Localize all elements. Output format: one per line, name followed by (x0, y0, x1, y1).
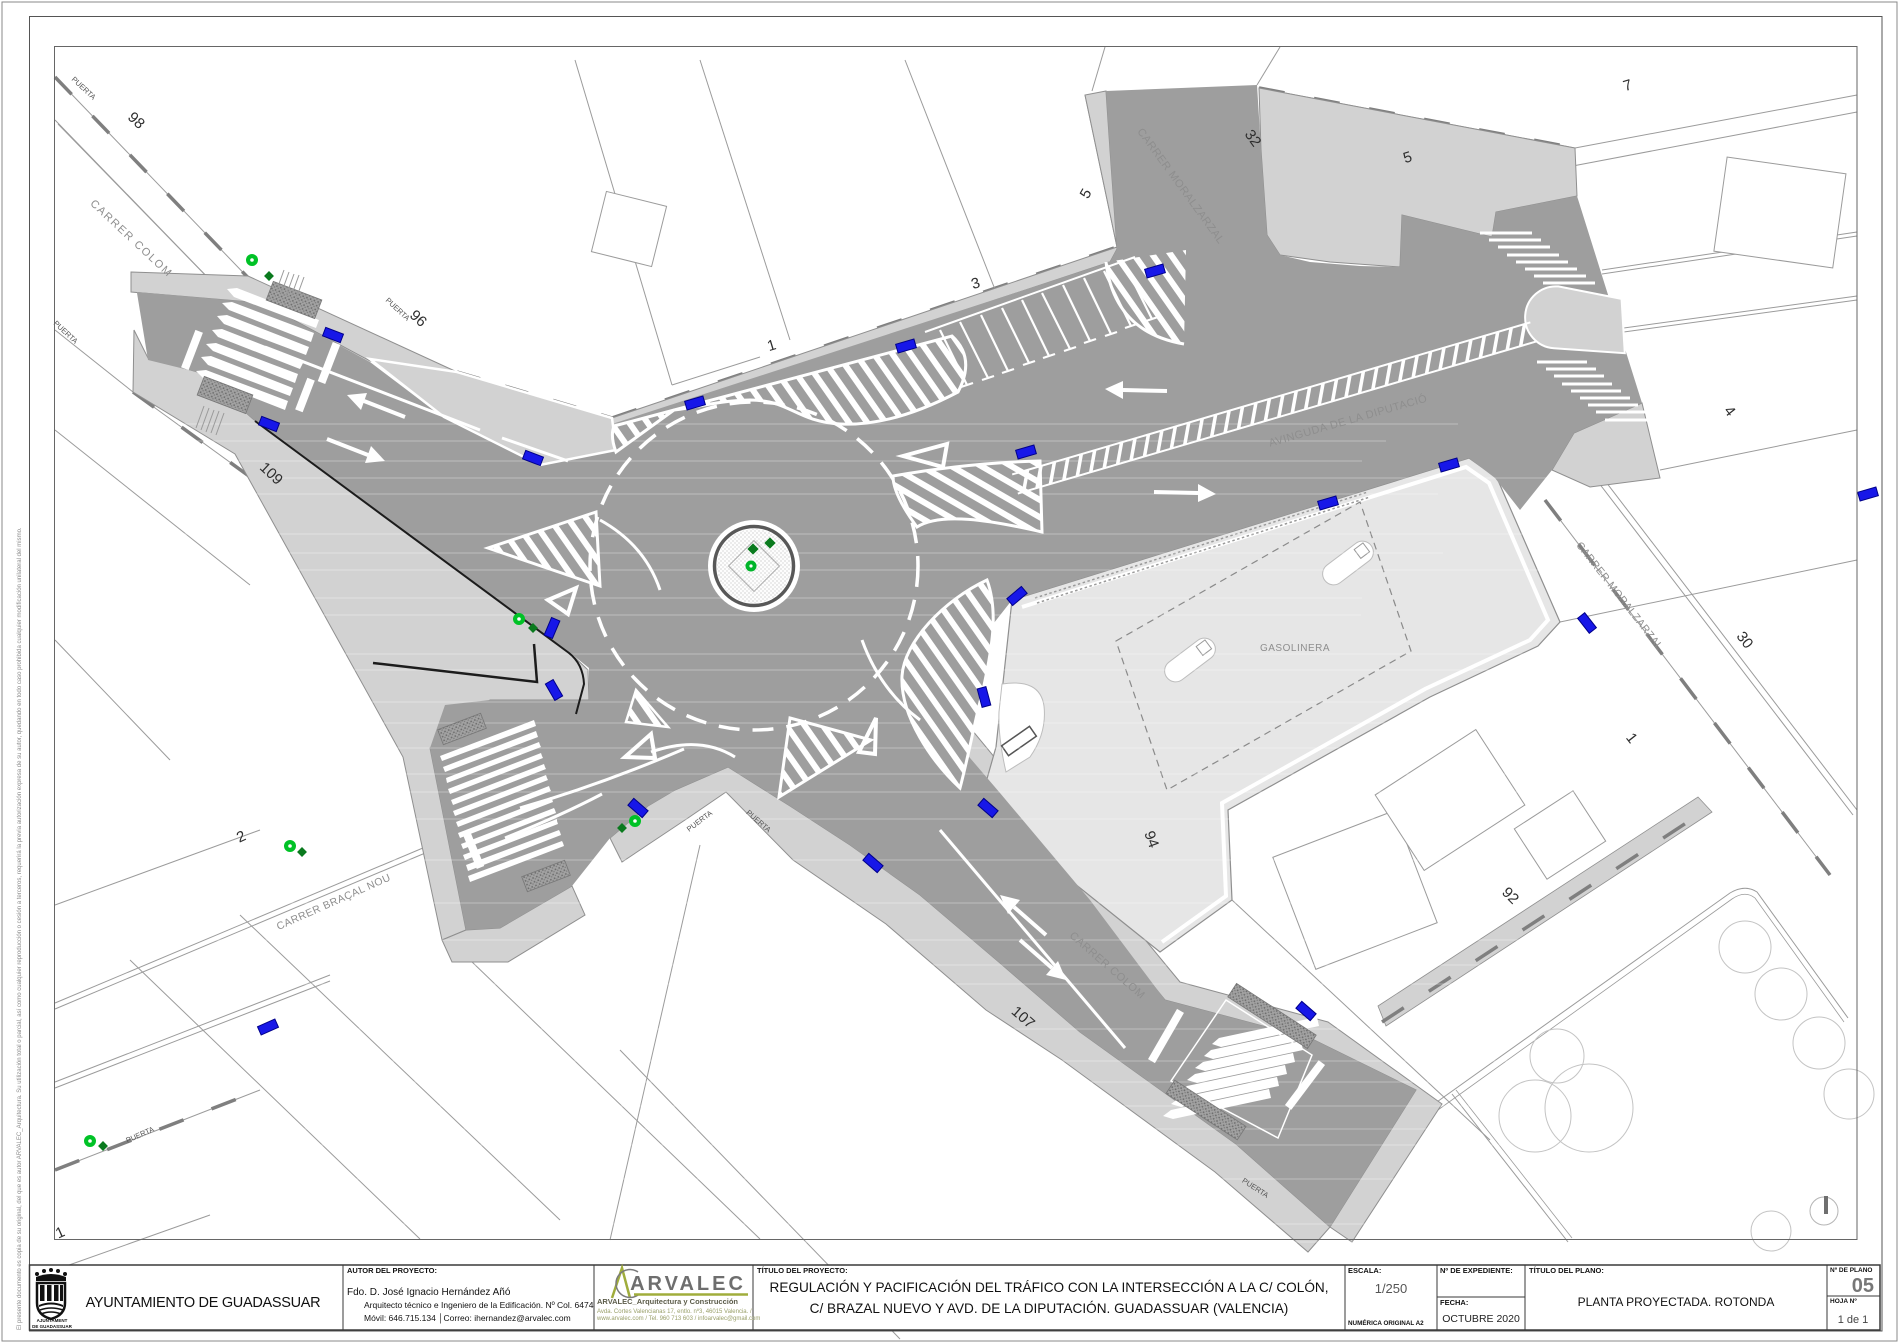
svg-text:OCTUBRE 2020: OCTUBRE 2020 (1442, 1313, 1520, 1325)
svg-text:1/250: 1/250 (1375, 1281, 1408, 1296)
svg-text:NUMÉRICA ORIGINAL A2: NUMÉRICA ORIGINAL A2 (1348, 1318, 1424, 1327)
svg-text:GASOLINERA: GASOLINERA (1260, 643, 1330, 654)
svg-text:www.arvalec.com / Tel. 960 713: www.arvalec.com / Tel. 960 713 603 / inf… (596, 1316, 760, 1322)
svg-text:TÍTULO DEL PROYECTO:: TÍTULO DEL PROYECTO: (757, 1266, 848, 1275)
svg-text:Nº DE PLANO: Nº DE PLANO (1830, 1267, 1872, 1274)
svg-text:ARVALEC_Arquitectura y Constru: ARVALEC_Arquitectura y Construcción (597, 1297, 738, 1306)
svg-text:Arquitecto técnico e Ingeniero: Arquitecto técnico e Ingeniero de la Edi… (364, 1300, 594, 1310)
svg-text:DE GUADASSUAR: DE GUADASSUAR (32, 1324, 73, 1329)
svg-text:ARVALEC: ARVALEC (630, 1273, 746, 1295)
svg-text:HOJA Nº: HOJA Nº (1830, 1298, 1857, 1305)
svg-text:PLANTA PROYECTADA. ROTONDA: PLANTA PROYECTADA. ROTONDA (1578, 1295, 1775, 1309)
svg-text:AJUNTAMENT: AJUNTAMENT (37, 1318, 68, 1323)
svg-text:FECHA:: FECHA: (1440, 1298, 1468, 1307)
svg-text:TÍTULO DEL PLANO:: TÍTULO DEL PLANO: (1529, 1266, 1604, 1275)
svg-text:ESCALA:: ESCALA: (1348, 1266, 1381, 1275)
svg-text:Móvil: 646.715.134 │Correo: i: Móvil: 646.715.134 │Correo: ihernandez@a… (364, 1313, 571, 1324)
svg-text:Nº DE EXPEDIENTE:: Nº DE EXPEDIENTE: (1440, 1266, 1513, 1275)
svg-text:C/ BRAZAL NUEVO Y AVD. DE LA D: C/ BRAZAL NUEVO Y AVD. DE LA DIPUTACIÓN.… (810, 1301, 1289, 1316)
svg-text:1 de 1: 1 de 1 (1838, 1314, 1869, 1326)
svg-text:REGULACIÓN Y PACIFICACIÓN DEL: REGULACIÓN Y PACIFICACIÓN DEL TRÁFICO CO… (770, 1280, 1329, 1295)
svg-text:AYUNTAMIENTO DE GUADASSUAR: AYUNTAMIENTO DE GUADASSUAR (86, 1295, 321, 1311)
svg-text:Avda. Cortes Valencianas 17, e: Avda. Cortes Valencianas 17, entlo. nº3,… (597, 1308, 752, 1315)
svg-text:05: 05 (1852, 1275, 1874, 1297)
svg-text:El presente documento es copia: El presente documento es copia de su ori… (17, 527, 23, 1330)
svg-text:Fdo. D. José Ignacio Hernández: Fdo. D. José Ignacio Hernández Añó (347, 1287, 511, 1298)
svg-text:AUTOR DEL PROYECTO:: AUTOR DEL PROYECTO: (347, 1266, 437, 1275)
